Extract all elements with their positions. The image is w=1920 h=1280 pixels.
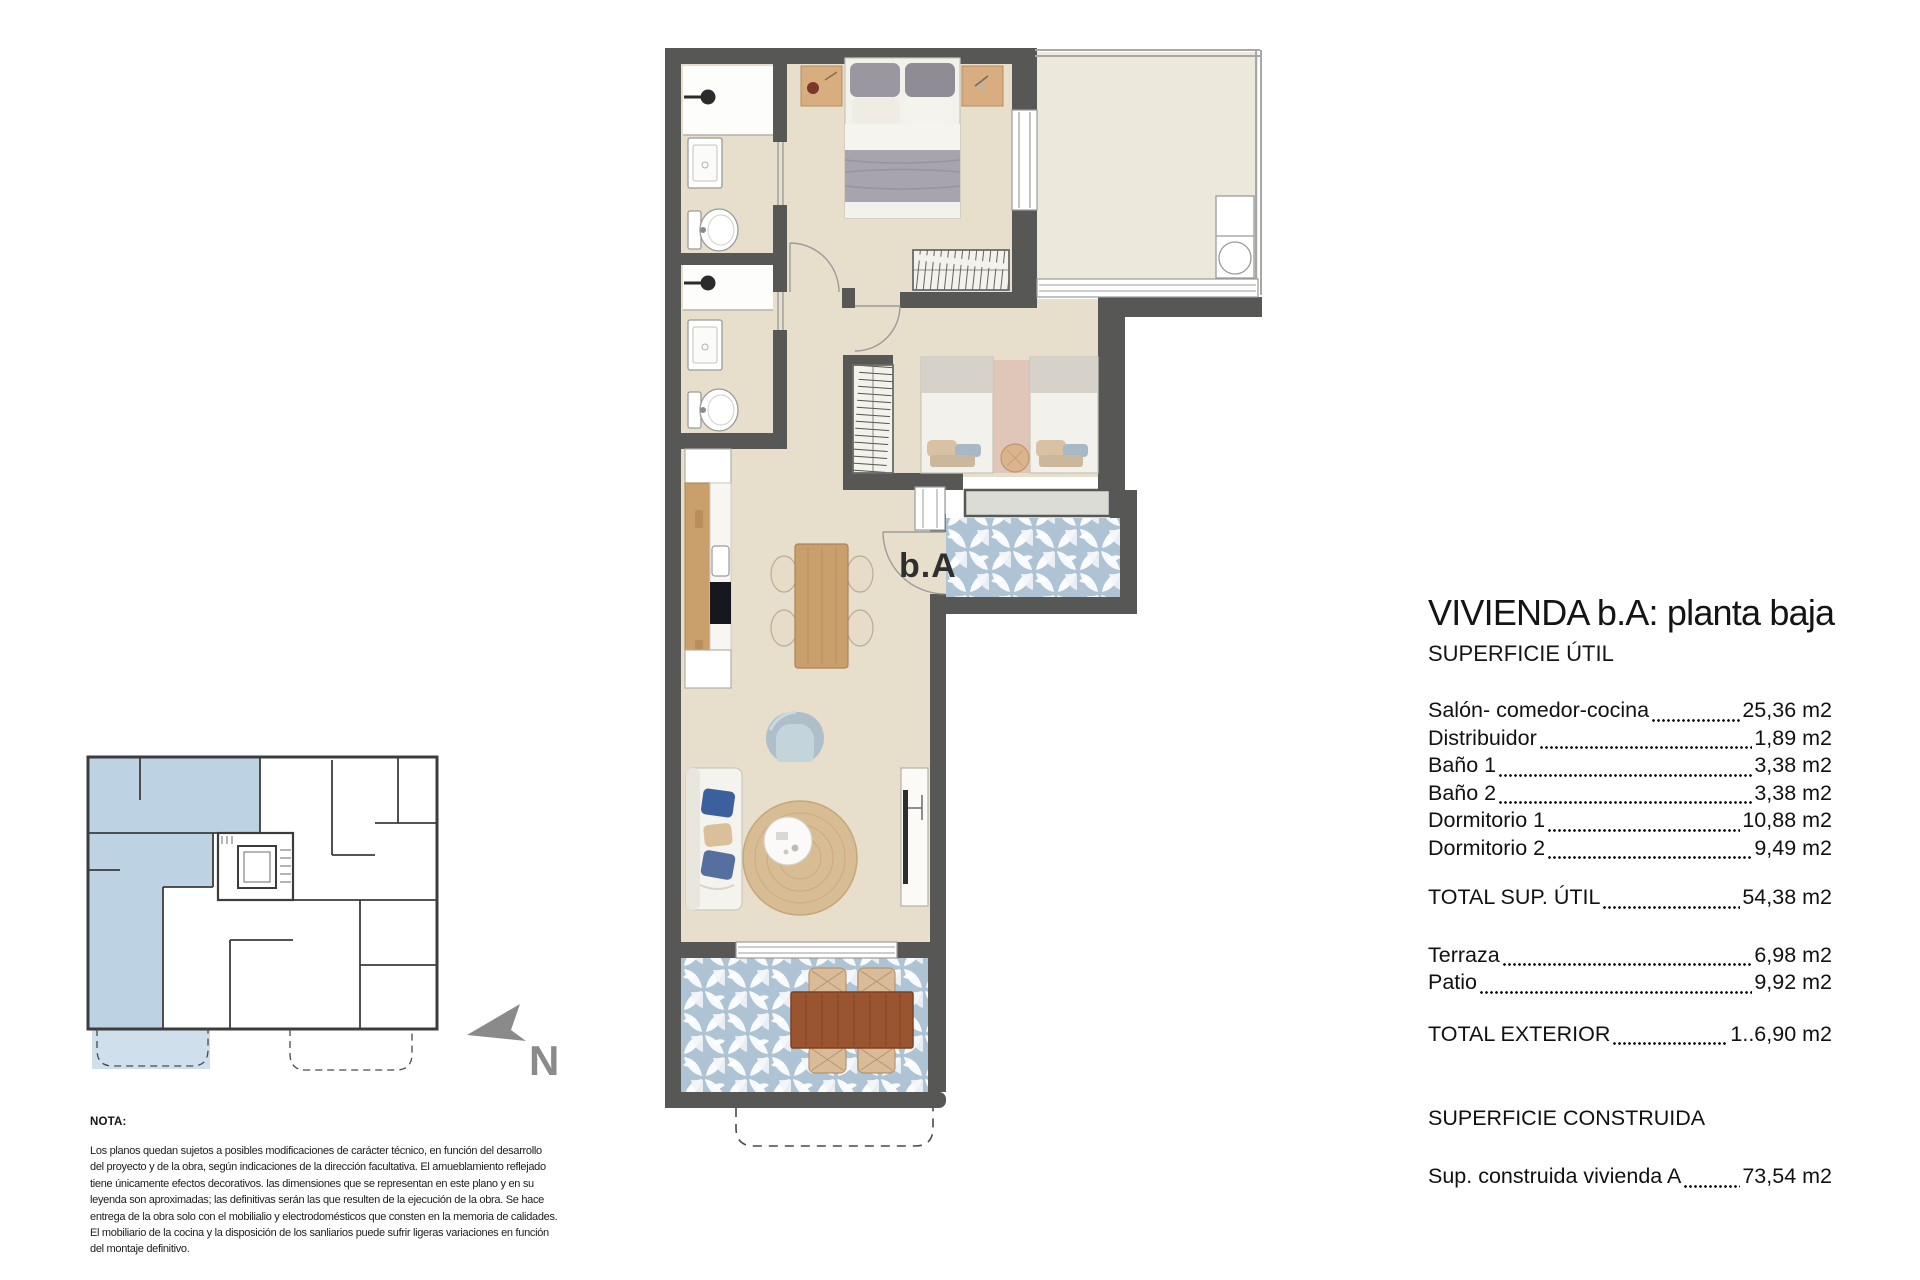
unit-label: b.A [899,547,957,585]
surface-row: Dormitorio 110,88 m2 [1428,807,1832,835]
surface-row: Salón- comedor-cocina25,36 m2 [1428,697,1832,725]
pillow [703,823,733,848]
sofa [686,768,742,910]
floors [681,52,1258,1092]
shower-1-floor [683,66,773,135]
dorm2-north-window [1037,279,1258,297]
dot-leader [1547,842,1752,862]
built-surface-row: Sup. construida vivienda A73,54 m2 [1428,1163,1832,1191]
living-window [736,942,897,958]
dot-leader [1502,949,1753,969]
double-bed-icon [845,58,960,218]
toilet-icon [688,392,701,428]
total-useful-row: TOTAL SUP. ÚTIL54,38 m2 [1428,884,1832,912]
terrace-projection-dashed [736,1108,933,1146]
dot-leader [1498,787,1752,807]
single-bed-icon [1030,357,1098,473]
dot-leader [1479,977,1752,997]
tv-console [901,768,928,906]
patio-utility [1216,196,1254,278]
terrace-chair [858,968,895,995]
keyplan-porch-right [290,1029,412,1070]
surface-row: Dormitorio 29,49 m2 [1428,835,1832,863]
north-arrow: N [467,1004,559,1084]
kitchen-sink [712,546,729,576]
terrace-chair [858,1046,895,1073]
surface-row: Baño 13,38 m2 [1428,752,1832,780]
toilet-icon [688,211,701,249]
fridge [685,449,731,483]
coffee-table [764,817,812,865]
north-label: N [529,1037,559,1084]
chair [847,556,873,592]
dot-leader [1612,1028,1728,1048]
dot-leader [1498,760,1752,780]
chair [771,610,797,646]
patio-tile-floor [946,518,1122,598]
chair [847,610,873,646]
note-block: NOTA: Los planos quedan sujetos a posibl… [90,1116,650,1258]
surface-row: Patio9,92 m2 [1428,969,1832,997]
shower-head-icon [701,276,716,291]
north-arrow-icon [467,1004,526,1041]
key-plan [88,757,437,1070]
dot-leader [1651,705,1740,725]
bedroom-2-furniture [853,357,1098,473]
dot-leader [1683,1171,1740,1191]
dot-leader [1602,892,1740,912]
pillow [700,788,735,818]
kitchen [685,449,731,688]
keyplan-core [218,833,293,900]
surface-row: Distribuidor1,89 m2 [1428,725,1832,753]
terrace-chair [809,1046,846,1073]
entrance-sidelight [915,487,945,530]
porch-highlight [92,1029,210,1069]
exterior-table: Terraza6,98 m2 Patio9,92 m2 [1428,942,1832,997]
main-floor-plan: b.A [665,48,1262,1146]
armchair [766,712,824,772]
useful-surface-heading: SUPERFICIE ÚTIL [1428,641,1832,667]
dot-leader [1539,732,1753,752]
terrace-table [791,992,913,1048]
built-surface-heading: SUPERFICIE CONSTRUIDA [1428,1106,1832,1131]
tv-icon [903,790,908,884]
single-bed-icon [921,357,993,473]
pillow [700,849,736,880]
shower-head-icon [701,90,716,105]
terrace-chair [809,968,846,995]
dorm2-sill [965,490,1110,516]
surface-row: Baño 23,38 m2 [1428,780,1832,808]
page-title: VIVIENDA b.A: planta baja [1428,590,1832,636]
surface-row: Terraza6,98 m2 [1428,942,1832,970]
cooktop [710,582,731,624]
useful-surface-table: Salón- comedor-cocina25,36 m2 Distribuid… [1428,697,1832,862]
note-body: Los planos quedan sujetos a posibles mod… [90,1143,650,1258]
total-exterior-row: TOTAL EXTERIOR1..6,90 m2 [1428,1021,1832,1049]
surface-panel: VIVIENDA b.A: planta baja SUPERFICIE ÚTI… [1428,590,1832,1191]
chair [771,556,797,592]
shower-2-floor [683,265,773,310]
dot-leader [1547,815,1740,835]
note-heading: NOTA: [90,1116,650,1128]
